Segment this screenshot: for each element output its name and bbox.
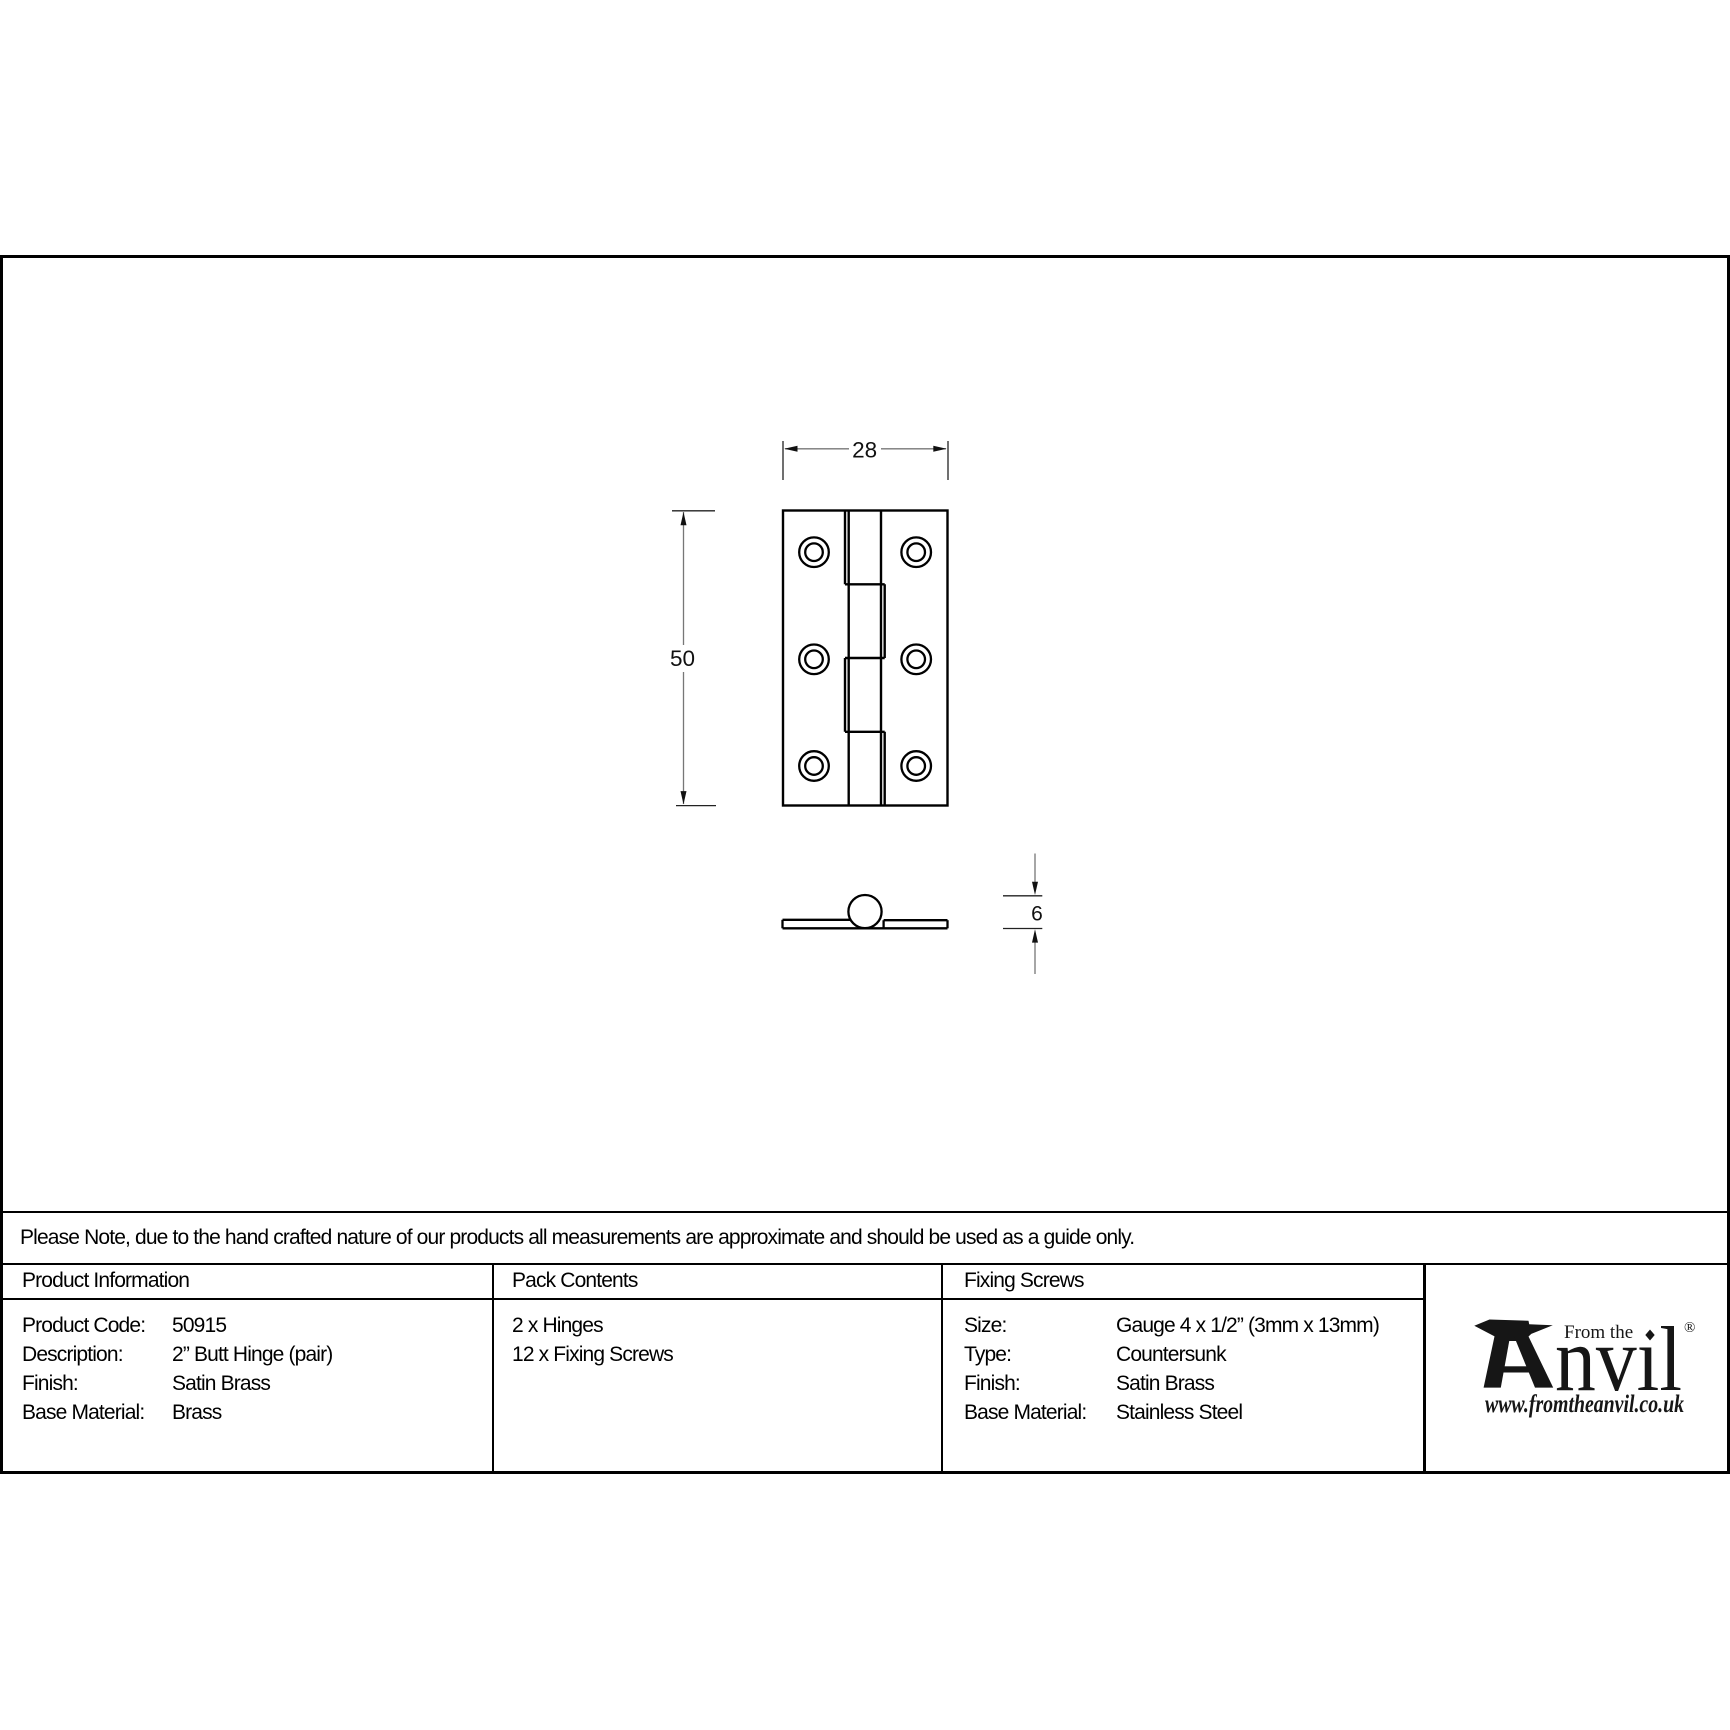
svg-text:6: 6 (1031, 903, 1043, 926)
svg-text:www.fromtheanvil.co.uk: www.fromtheanvil.co.uk (1485, 1391, 1684, 1418)
svg-text:50: 50 (670, 646, 695, 671)
svg-text:28: 28 (852, 438, 877, 463)
svg-text:®: ® (1684, 1320, 1695, 1336)
